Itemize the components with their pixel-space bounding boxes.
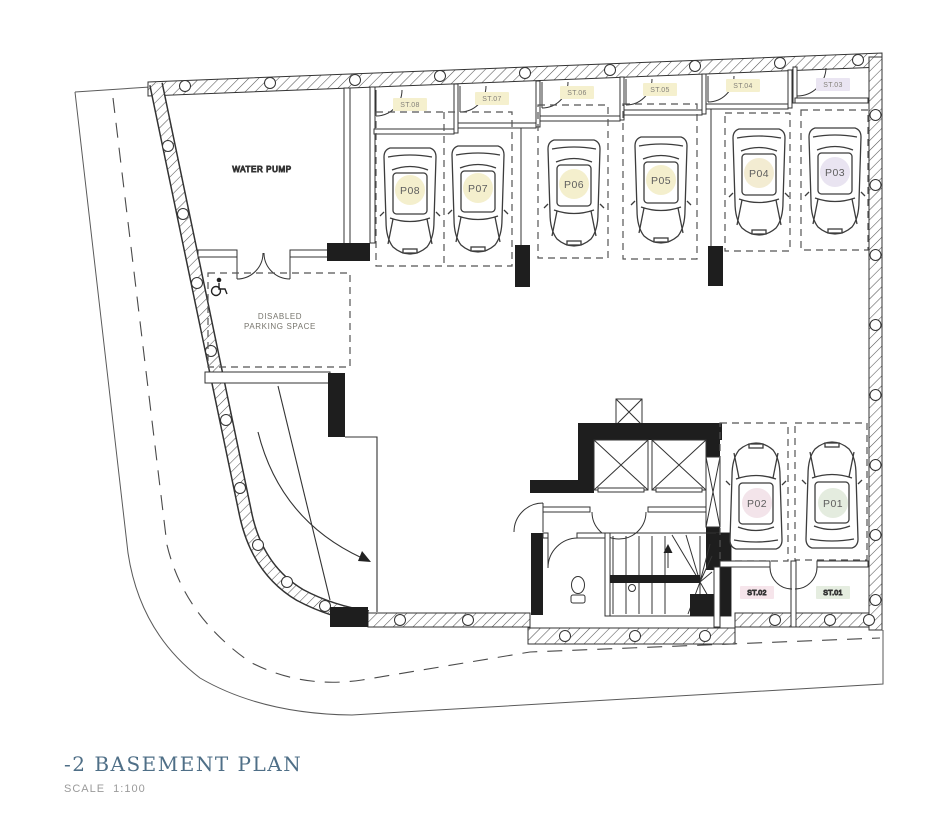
parking-label: P02 [742, 488, 772, 518]
parking-label: P01 [818, 488, 848, 518]
svg-text:P05: P05 [651, 175, 671, 187]
column [327, 243, 370, 261]
wheelchair-icon [212, 278, 228, 295]
disabled-label-line1: DISABLED [258, 312, 302, 321]
parking-label: P08 [395, 175, 425, 205]
page-title: -2 BASEMENT PLAN [64, 752, 302, 776]
svg-text:ST.04: ST.04 [733, 83, 752, 90]
storage-units-top [370, 67, 868, 246]
svg-text:ST.02: ST.02 [747, 590, 766, 597]
disabled-label-line2: PARKING SPACE [244, 322, 316, 331]
basement-plan-sheet: WATER PUMP DISABLED PARKING SPACE [0, 0, 944, 821]
parking-label: P07 [463, 173, 493, 203]
storage-label: ST.02 [740, 586, 774, 599]
svg-text:P01: P01 [823, 498, 843, 510]
parking-label: P04 [744, 158, 774, 188]
storage-label: ST.07 [475, 92, 509, 105]
storage-label: ST.05 [643, 83, 677, 96]
storage-label: ST.08 [393, 98, 427, 111]
disabled-parking-space: DISABLED PARKING SPACE [205, 273, 350, 383]
scale-label: SCALE 1:100 [64, 783, 302, 795]
storage-label: ST.03 [816, 78, 850, 91]
svg-text:ST.03: ST.03 [823, 82, 842, 89]
storage-label: ST.04 [726, 79, 760, 92]
svg-text:ST.08: ST.08 [400, 102, 419, 109]
svg-text:ST.07: ST.07 [482, 96, 501, 103]
svg-text:P04: P04 [749, 168, 769, 180]
storage-label: ST.06 [560, 86, 594, 99]
wc-door [548, 538, 578, 568]
svg-text:ST.05: ST.05 [650, 87, 669, 94]
column [515, 245, 530, 287]
svg-text:P08: P08 [400, 185, 420, 197]
svg-text:ST.06: ST.06 [567, 90, 586, 97]
drive-arrow-head [358, 551, 371, 562]
garage-entry-door [514, 503, 543, 532]
svg-text:ST.01: ST.01 [823, 590, 842, 597]
parking-label: P03 [820, 157, 850, 187]
toilet-icon [571, 577, 585, 604]
elevator-cab [594, 440, 706, 492]
svg-text:P07: P07 [468, 183, 488, 195]
column [330, 607, 368, 627]
parking-label: P06 [559, 169, 589, 199]
water-pump-label: WATER PUMP [232, 165, 291, 174]
column [708, 246, 723, 286]
svg-text:P03: P03 [825, 167, 845, 179]
floor-plan-svg: WATER PUMP DISABLED PARKING SPACE [0, 0, 944, 740]
title-block: -2 BASEMENT PLAN SCALE 1:100 [64, 752, 302, 795]
parking-bay-bottom: P02 P01 [720, 423, 867, 561]
svg-text:P06: P06 [564, 179, 584, 191]
drive-direction-arrow [258, 432, 362, 558]
storage-label: ST.01 [816, 586, 850, 599]
water-pump-door [237, 253, 290, 279]
staircase-block [514, 503, 731, 616]
svg-text:P02: P02 [747, 498, 767, 510]
parking-label: P05 [646, 165, 676, 195]
